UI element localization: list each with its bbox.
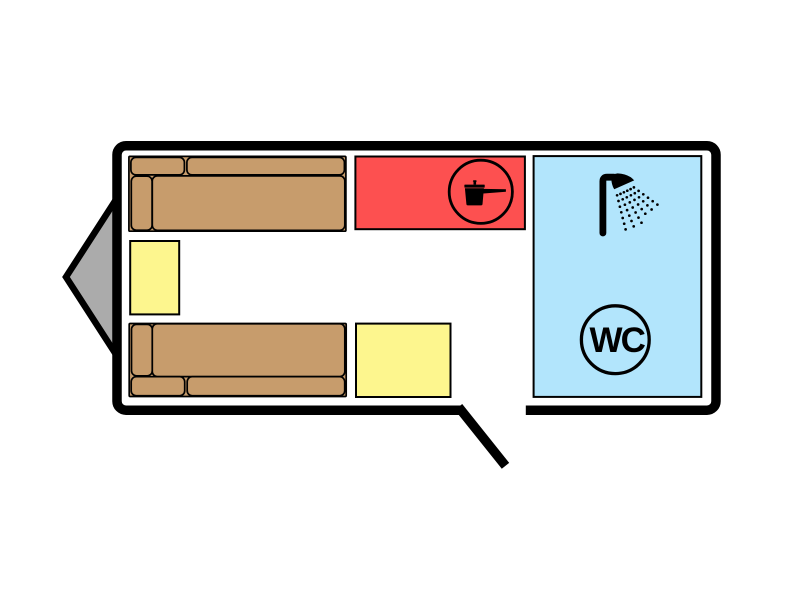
svg-text:WC: WC bbox=[589, 321, 645, 360]
